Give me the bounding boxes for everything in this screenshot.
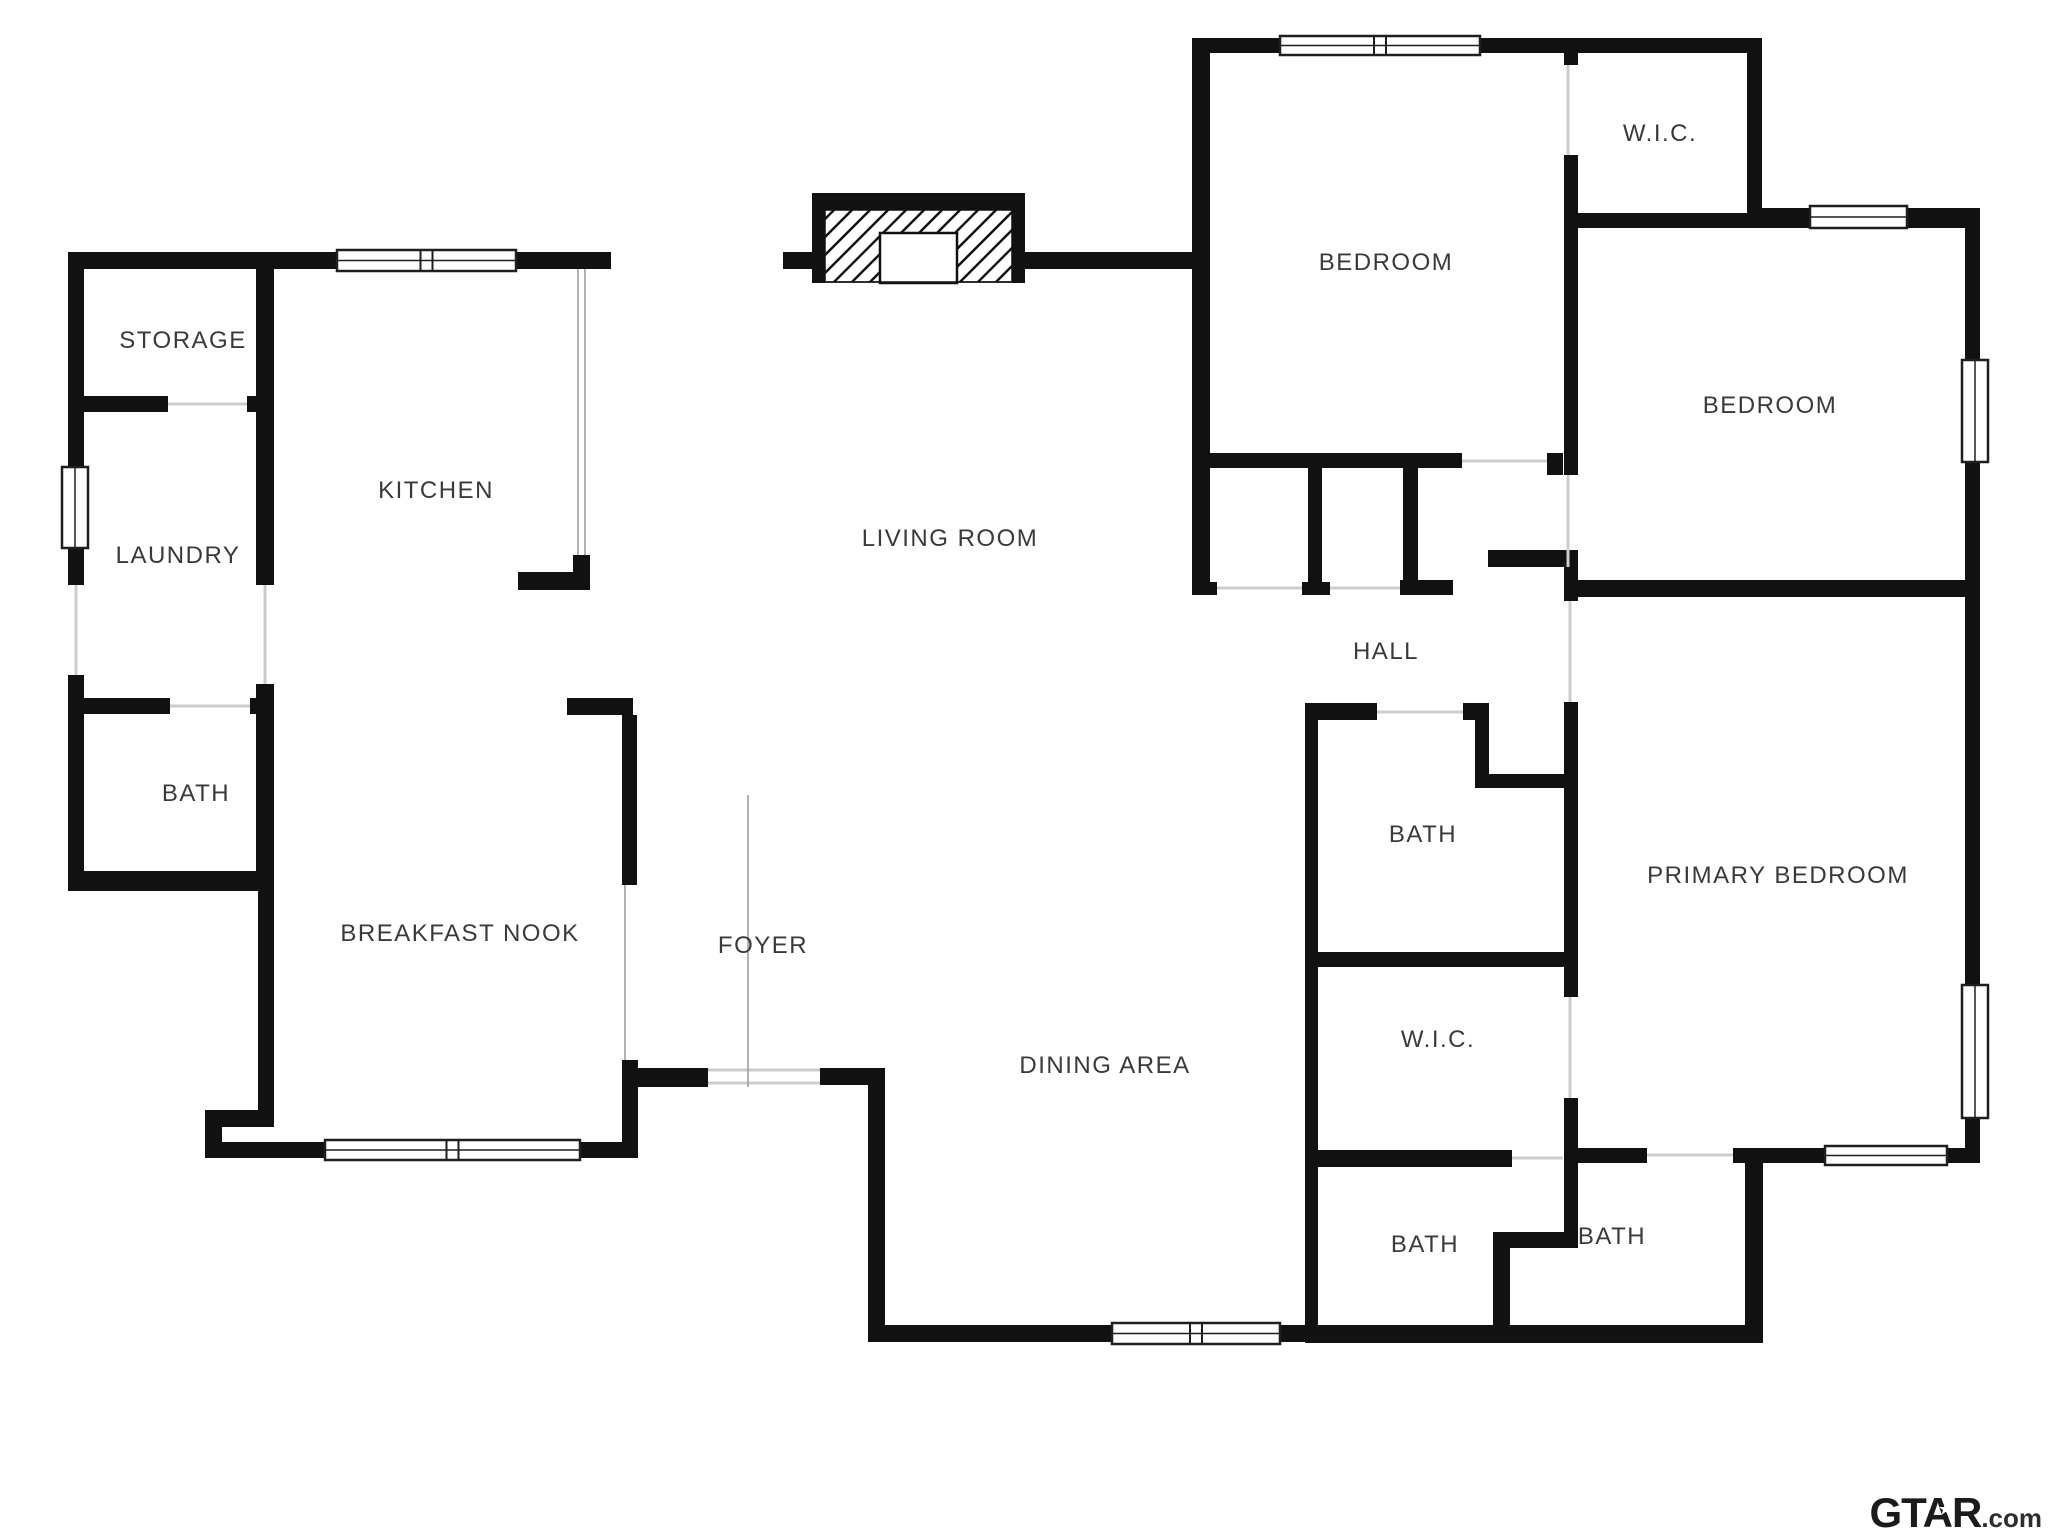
watermark-suffix: .com	[1981, 1503, 2042, 1533]
wall-segment	[573, 555, 590, 572]
room-label-bath-16: BATH	[1578, 1223, 1646, 1251]
wall-segment	[1907, 208, 1980, 228]
wall-segment	[1965, 460, 1980, 597]
room-label-living-room-3: LIVING ROOM	[862, 525, 1039, 553]
watermark: GTAR★.com	[1869, 1492, 2042, 1534]
wall-segment	[1564, 702, 1578, 997]
wall-segment	[1305, 967, 1318, 1150]
wall-segment	[1762, 208, 1810, 228]
wall-segment	[68, 548, 84, 585]
wall-segment	[1305, 703, 1318, 967]
wall-segment	[68, 871, 260, 891]
wall-segment	[1747, 38, 1762, 228]
room-label-bedroom-9: BEDROOM	[1319, 249, 1454, 277]
wall-segment	[68, 252, 84, 467]
wall-segment	[1192, 38, 1280, 53]
room-label-w-i-c-10: W.I.C.	[1623, 120, 1697, 148]
wall-segment	[1302, 582, 1330, 595]
room-label-bedroom-11: BEDROOM	[1703, 392, 1838, 420]
watermark-star-icon: ★	[1939, 1502, 1951, 1517]
wall-segment	[633, 1068, 708, 1087]
wall-segment	[256, 268, 274, 585]
fireplace	[812, 193, 1025, 283]
fireplace-border	[812, 193, 825, 283]
wall-segment	[1493, 1248, 1510, 1342]
wall-segment	[1192, 38, 1210, 595]
room-label-bath-4: BATH	[162, 780, 230, 808]
window	[1112, 1323, 1280, 1344]
thin-dividers	[578, 269, 748, 1087]
wall-segment	[68, 698, 170, 714]
wall-segment	[1400, 580, 1453, 595]
wall-segment	[1493, 1232, 1578, 1248]
wall-segment	[1564, 213, 1762, 228]
wall-segment	[1305, 1167, 1318, 1342]
wall-segment	[256, 684, 274, 891]
window	[1825, 1146, 1947, 1165]
window	[325, 1140, 580, 1160]
room-label-foyer-6: FOYER	[718, 932, 808, 960]
watermark-brand: GTAR★	[1869, 1489, 1981, 1536]
wall-segment	[205, 1110, 274, 1127]
wall-segment	[205, 1142, 325, 1158]
wall-segment	[68, 252, 337, 269]
window	[1962, 360, 1988, 462]
wall-segment	[1564, 155, 1578, 475]
room-label-bath-13: BATH	[1389, 821, 1457, 849]
wall-segment	[1578, 580, 1965, 597]
wall-segment	[1578, 1148, 1647, 1163]
window	[337, 250, 516, 271]
room-label-bath-15: BATH	[1391, 1231, 1459, 1259]
room-label-primary-bedroom-12: PRIMARY BEDROOM	[1647, 862, 1909, 890]
window	[1810, 206, 1907, 228]
room-label-laundry-2: LAUNDRY	[116, 542, 241, 570]
wall-segment	[1025, 252, 1195, 269]
wall-segment	[1488, 550, 1578, 567]
wall-segment	[1564, 567, 1578, 601]
room-label-kitchen-1: KITCHEN	[378, 477, 494, 505]
wall-segment	[868, 1085, 885, 1342]
fireplace-border	[812, 193, 1025, 210]
wall-segment	[1192, 453, 1462, 468]
wall-segment	[1403, 455, 1418, 583]
floor-plan-drawing	[0, 0, 2048, 1536]
wall-segment	[1947, 1148, 1980, 1163]
wall-segment	[1305, 1325, 1763, 1343]
wall-segment	[1308, 468, 1322, 583]
wall-segment	[1745, 1163, 1763, 1343]
floor-plan-canvas: STORAGEKITCHENLAUNDRYLIVING ROOMBATHBREA…	[0, 0, 2048, 1536]
room-label-w-i-c-14: W.I.C.	[1401, 1026, 1475, 1054]
window	[62, 467, 88, 548]
wall-segment	[516, 252, 611, 269]
wall-segment	[68, 396, 168, 412]
room-label-dining-area-7: DINING AREA	[1019, 1052, 1190, 1080]
wall-segment	[622, 715, 637, 885]
wall-segment	[518, 572, 590, 590]
wall-segment	[1305, 952, 1565, 967]
room-label-breakfast-nook-5: BREAKFAST NOOK	[340, 920, 579, 948]
wall-segment	[1564, 53, 1578, 65]
room-label-storage-0: STORAGE	[119, 327, 246, 355]
wall-segment	[1480, 38, 1762, 53]
wall-segment	[1564, 1098, 1578, 1248]
wall-segment	[1305, 1150, 1512, 1167]
wall-segment	[820, 1068, 885, 1085]
wall-segment	[1192, 582, 1217, 595]
wall-segment	[783, 252, 812, 269]
wall-segment	[1475, 774, 1565, 788]
room-label-hall-8: HALL	[1353, 638, 1419, 666]
fireplace-border	[1012, 193, 1025, 283]
wall-segment	[1733, 1148, 1825, 1163]
wall-segment	[258, 891, 274, 1127]
wall-segment	[868, 1325, 1112, 1342]
wall-segment	[1965, 228, 1980, 360]
window	[1962, 985, 1988, 1118]
window	[1280, 36, 1480, 55]
wall-segment	[1965, 597, 1980, 985]
fireplace-firebox	[880, 233, 957, 283]
wall-segment	[567, 698, 633, 715]
wall-segment	[1547, 453, 1563, 475]
